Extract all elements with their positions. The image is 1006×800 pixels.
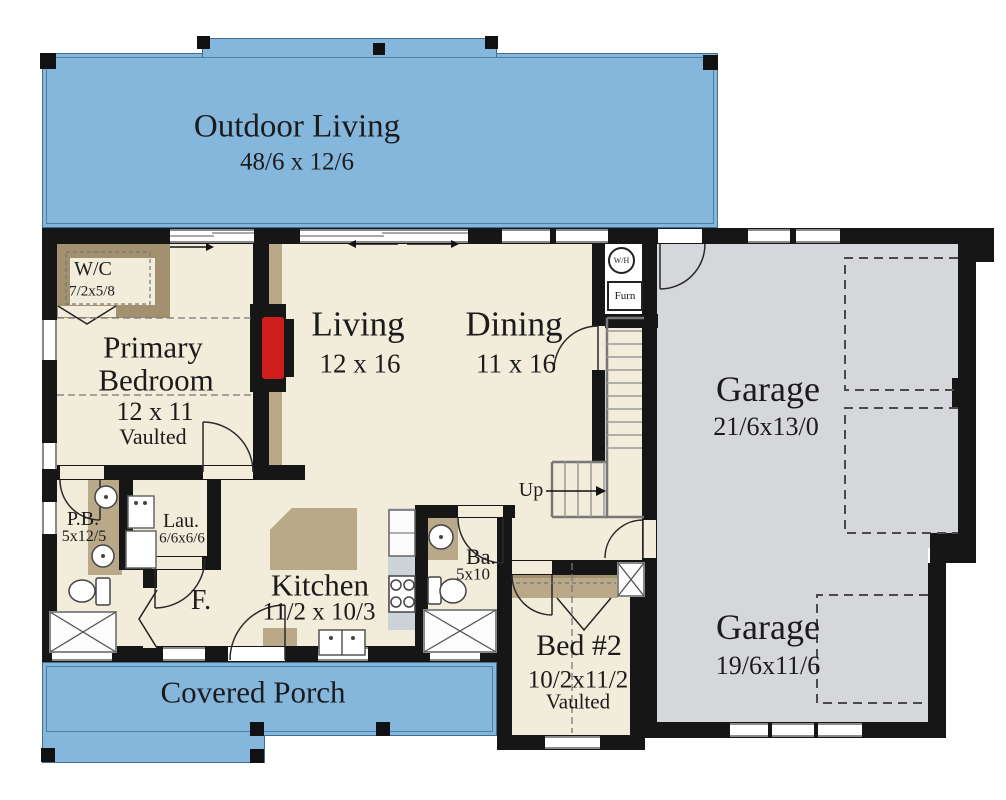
front-door-opening [228,647,285,661]
garage-door-jamb [952,378,976,408]
kitchen-counter [388,508,415,630]
bath2-vanity [424,518,458,560]
pbath-shower-window [52,647,112,661]
garage-window [796,229,840,243]
outdoor-living-dims: 48/6 x 12/6 [240,150,354,175]
garage-wall-right-lower [928,563,946,738]
laundry-door-opening [152,557,202,569]
bedroom-window [42,320,57,360]
dining-window [556,229,608,243]
fireplace-notch [286,377,294,392]
garage-window [748,229,790,243]
kitchen-island [270,508,357,570]
kitchen-bath-wall [415,505,428,655]
living-dims: 12 x 16 [320,351,401,378]
wc-dims: 7/2x5/8 [69,285,115,300]
garage-upper-dims: 21/6x13/0 [713,414,818,440]
porch-post [703,55,718,70]
porch-post [40,53,56,69]
porch-post [250,749,264,763]
furnace: Furn [607,281,643,311]
water-heater-label: W/H [614,257,630,265]
pbath-door-opening [60,466,104,479]
porch-post [373,43,385,55]
dining-label: Dining [465,307,562,342]
dining-door-opening [592,326,605,370]
wc-closet-wall-top [57,244,170,258]
bath2-dims: 5x10 [456,566,490,583]
house-garage-wall [642,244,657,560]
garage-lower-label: Garage [716,609,820,645]
living-label: Living [311,307,404,342]
garage-window [772,723,814,737]
pbath-dims: 5x12/5 [62,529,106,545]
wc-door-opening [58,306,116,317]
fireplace-firebox [262,317,284,379]
water-heater: W/H [608,247,635,274]
garage-window [730,723,768,737]
covered-porch-extension [42,735,265,763]
pbath-laundry-wall [119,470,133,570]
garage-wall-jog [930,533,976,563]
porch-post [250,722,264,736]
garage-service-door-opening [658,229,702,243]
laundry-label: Lau. [163,511,199,531]
hall-window [163,647,205,661]
pbath-window [42,502,57,534]
primary-bedroom-label-2: Bedroom [98,365,213,396]
primary-bedroom-label-1: Primary [103,332,203,363]
dining-window [502,229,550,243]
garage-lower-dims: 19/6x11/6 [716,653,820,679]
bedroom-window [42,443,57,469]
bed2-window [545,736,600,749]
floor-plan: W/H Furn [0,0,1006,800]
porch-post [197,36,210,49]
bath2-door-opening [458,506,503,517]
porch-post [376,722,390,736]
furnace-label: Furn [615,291,636,302]
porch-post [41,748,55,762]
kitchen-label: Kitchen [271,570,369,601]
dining-dims: 11 x 16 [476,351,556,378]
foyer-hall-opening [143,588,157,648]
bedroom-door-opening [203,466,253,479]
garage-upper-label: Garage [716,371,820,407]
living-slider [300,229,468,243]
laundry-dims: 6/6x6/6 [159,532,205,547]
bed2-note: Vaulted [546,692,610,713]
bath2-window [430,647,480,661]
porch-post [485,36,498,49]
foyer-label: F. [191,587,211,615]
kitchen-dims: 11/2 x 10/3 [263,600,376,625]
outdoor-living-label: Outdoor Living [194,111,400,144]
bed2-wall-left [497,560,512,750]
bed2-label: Bed #2 [536,631,622,661]
fireplace-notch [286,304,294,319]
kitchen-window [318,647,368,661]
bedroom-slider [170,229,254,243]
stairs-up-label: Up [519,480,543,500]
outdoor-living-bump [202,38,497,57]
pbath-label: P.B. [67,509,99,529]
bed2-door-opening [512,561,552,574]
covered-porch-label: Covered Porch [160,677,345,708]
wc-label: W/C [74,259,112,279]
primary-bedroom-dims: 12 x 11 [116,399,193,425]
primary-bedroom-note: Vaulted [119,426,186,448]
garage-entry-opening [643,520,656,558]
bed2-wall-right [630,560,645,750]
kitchen-cabinet [263,628,297,646]
garage-window [818,723,862,737]
